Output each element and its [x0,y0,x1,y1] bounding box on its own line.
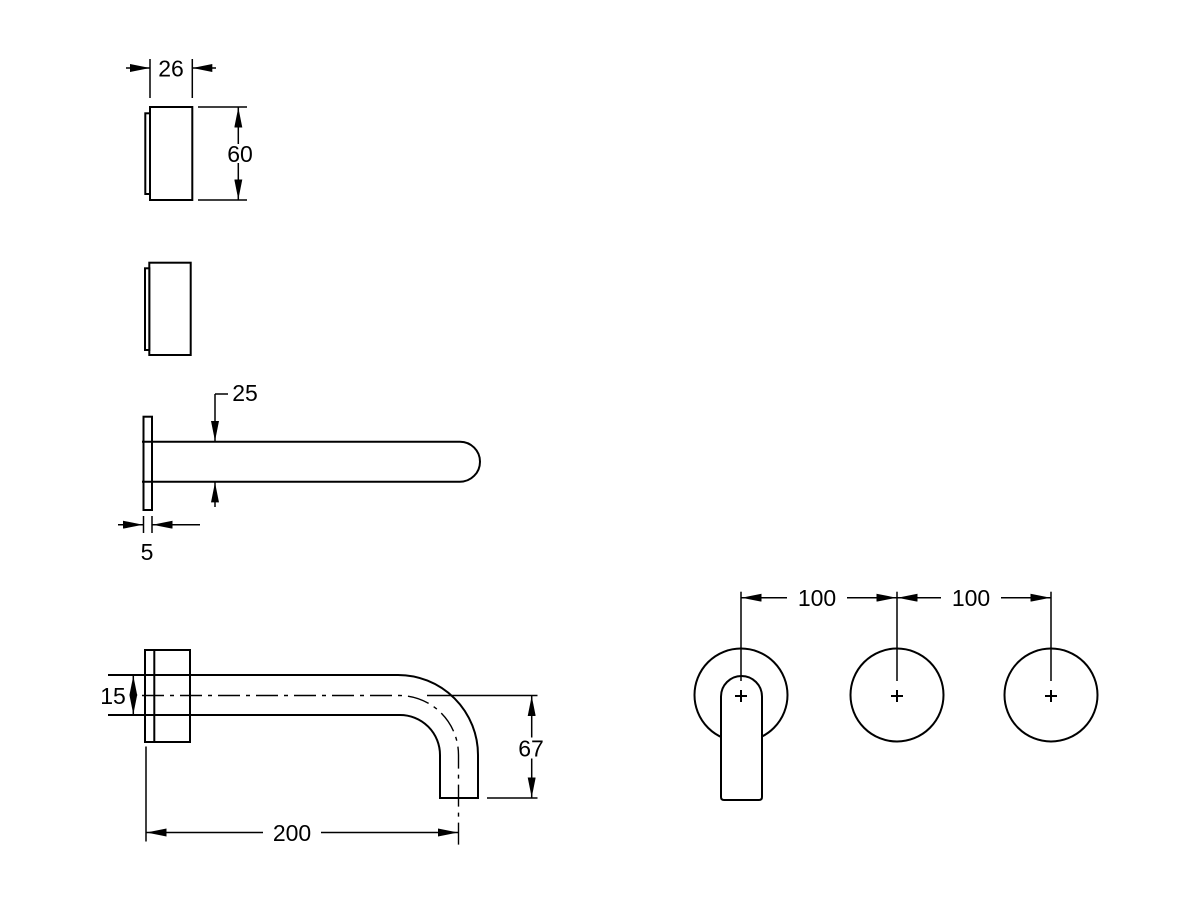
dim-label-spout-diameter: 25 [232,380,258,406]
dim-flange-thickness: 5 [118,516,200,565]
technical-drawing-canvas: 26 60 25 5 [0,0,1200,900]
dim-spout-diameter: 25 [215,380,258,507]
handle-base-lip [145,113,150,194]
dim-pitch-left: 100 [742,585,897,611]
dim-label-handle-width: 26 [158,55,184,81]
handle2-base-lip [145,268,149,350]
dim-label-handle-height: 60 [227,141,253,167]
dim-label-spout-reach: 200 [273,820,311,846]
handle-side-view-2 [145,263,191,355]
spout-wall-plate [144,417,153,510]
dim-label-flange-thickness: 5 [141,539,154,565]
dim-handle-height: 60 [198,107,253,200]
dim-label-pitch-right: 100 [952,585,990,611]
handle-body-outline [150,107,192,200]
spout-plan-view: 25 5 [118,380,480,565]
dim-handle-width: 26 [126,55,216,98]
dim-spout-outlet-height: 15 [100,676,133,715]
spout-side-view: 15 67 200 [100,650,544,846]
front-view: 100 100 [695,585,1098,800]
dim-spout-reach: 200 [146,747,458,846]
dim-label-spout-outlet-height: 15 [100,683,126,709]
dim-label-pitch-left: 100 [798,585,836,611]
dim-label-spout-drop: 67 [518,735,544,761]
dim-pitch-right: 100 [898,585,1051,611]
tap-set-technical-drawing: 26 60 25 5 [0,0,1200,900]
spout-tube-outline [142,442,480,482]
handle2-body-outline [149,263,190,355]
dim-spout-drop: 67 [427,696,544,799]
handle-side-view: 26 60 [126,55,253,200]
